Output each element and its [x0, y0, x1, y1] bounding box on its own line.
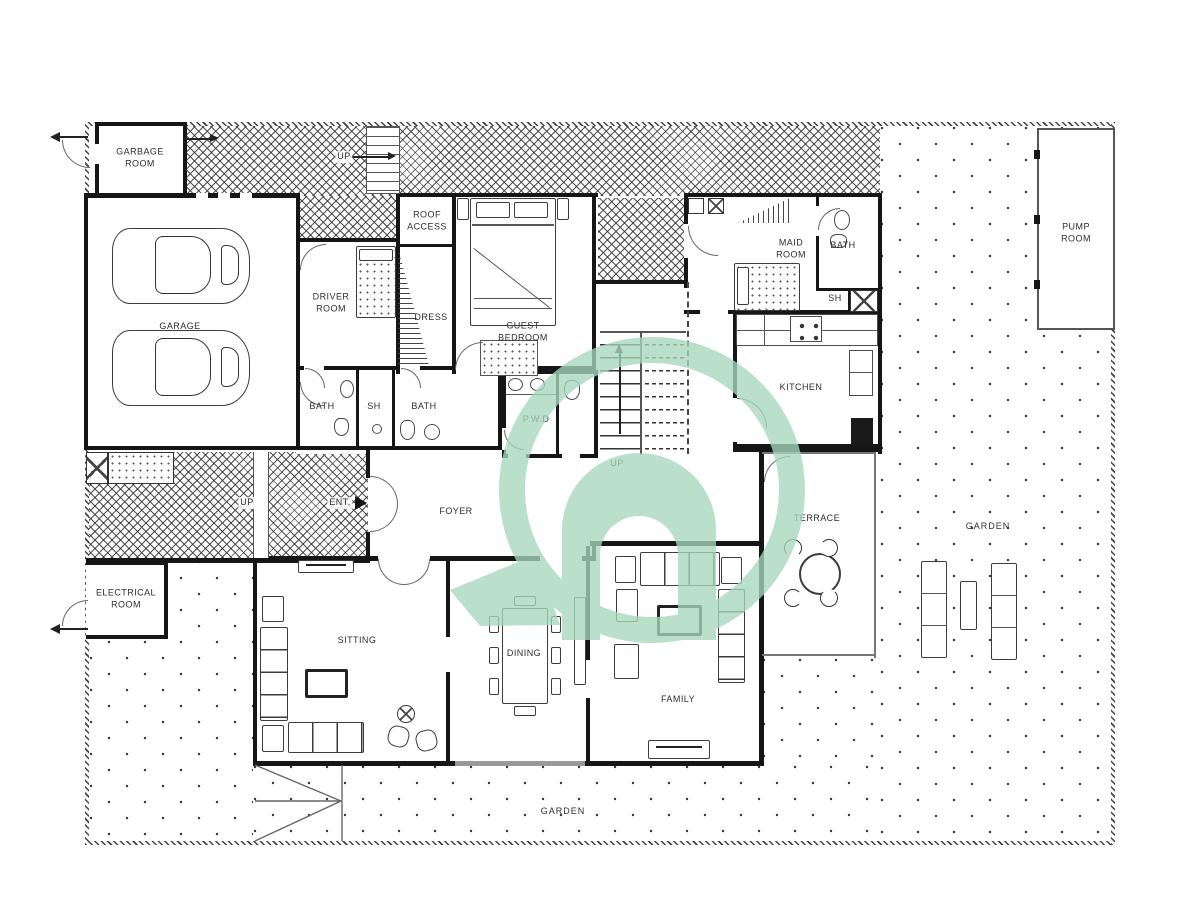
room-label-sitting: SITTING [338, 635, 377, 647]
sink-divider-line [849, 372, 873, 373]
room-label-family: FAMILY [661, 694, 695, 706]
entry-stair [366, 126, 400, 194]
car-hood-line [221, 347, 239, 387]
left-arrow-icon [50, 132, 60, 142]
refrigerator [851, 418, 873, 444]
label-ramp-up: UP [238, 497, 255, 509]
wall [396, 244, 454, 247]
walkway-top [178, 126, 880, 196]
garden-area-bottom [253, 765, 880, 841]
right-arrow-icon [388, 152, 396, 160]
wall [183, 122, 187, 196]
column [1034, 280, 1040, 289]
sofa [260, 627, 288, 721]
room-label-maid-bath: BATH [830, 240, 855, 252]
wall-gap [196, 193, 208, 198]
sink-icon [424, 424, 440, 440]
wall [164, 561, 168, 639]
garden-lounger [921, 561, 947, 658]
garden-side-table [960, 581, 977, 630]
wall [296, 193, 300, 450]
planter-box [108, 452, 174, 484]
entry-stair-arrow-line [350, 156, 390, 158]
boundary-wall-bottom [85, 841, 1115, 845]
wall [86, 561, 168, 565]
plant-icon [397, 705, 415, 723]
label-entrance: ENT. [327, 497, 352, 509]
car-hood-line [221, 245, 239, 285]
room-label-bath-1: BATH [309, 401, 334, 413]
room-label-maid-room: MAID ROOM [776, 237, 806, 260]
pillow [476, 202, 510, 218]
pillow [359, 249, 393, 261]
terrace-chair [820, 589, 838, 607]
wall [84, 446, 300, 450]
lounger-line [921, 593, 947, 594]
exit-arrow-line [60, 628, 88, 630]
drain-icon [372, 424, 382, 434]
sink-icon [340, 380, 354, 398]
garden-triangle-feature [253, 763, 347, 843]
car-cabin [155, 338, 211, 396]
wall [95, 164, 99, 196]
column-x-box [86, 452, 108, 484]
wall [366, 450, 370, 478]
watermark-logo [440, 330, 820, 660]
column [1034, 150, 1040, 159]
wall-gap [240, 193, 252, 198]
entrance-arrow-icon [355, 496, 367, 510]
room-label-maid-shower: SH [828, 293, 841, 305]
side-table [262, 725, 284, 752]
door-arc [62, 600, 88, 626]
terrace-wall [874, 452, 876, 658]
walkway-patch-notch [598, 198, 684, 282]
label-up-entry-stair: UP [335, 151, 352, 163]
wall [253, 556, 257, 766]
side-table [262, 596, 284, 622]
wall [596, 280, 686, 284]
room-label-dress: DRESS [414, 312, 447, 324]
room-label-garden-bottom: GARDEN [541, 806, 586, 818]
chair [514, 706, 536, 716]
wall [84, 193, 300, 198]
shaft-box [688, 198, 704, 214]
wall [455, 761, 585, 766]
tv-console [298, 560, 354, 573]
nightstand [557, 198, 569, 220]
door-gap [700, 310, 728, 314]
wall-gap [218, 193, 230, 198]
toilet-icon [400, 420, 415, 440]
bed-headboard-line [472, 224, 554, 226]
wall [878, 193, 882, 454]
room-label-electrical-room: ELECTRICAL ROOM [96, 587, 156, 610]
lounger-line [991, 627, 1017, 628]
exit-arrow-line [60, 136, 88, 138]
tv-console [648, 740, 710, 759]
wall [684, 193, 882, 197]
tv-line [656, 746, 702, 748]
coffee-table [305, 669, 348, 698]
pillow [514, 202, 548, 218]
sofa [288, 722, 364, 753]
column [1034, 215, 1040, 224]
floor-plan-canvas: GARBAGE ROOM GARAGE UP ROOF ACCESS DRIVE… [0, 0, 1200, 900]
door-arc [62, 140, 90, 168]
wall [356, 366, 359, 450]
room-label-driver-room: DRIVER ROOM [313, 291, 350, 314]
wall [446, 672, 450, 761]
room-label-bath-2: BATH [411, 401, 436, 413]
right-arrow-icon [210, 134, 219, 142]
wall [296, 238, 398, 242]
car [112, 228, 250, 304]
garden-area-below-terrace [762, 658, 880, 765]
room-label-pump-room: PUMP ROOM [1061, 221, 1091, 244]
room-label-garage: GARAGE [159, 321, 200, 333]
terrace-chair [820, 539, 838, 557]
lounger-line [991, 595, 1017, 596]
room-label-garbage-room: GARBAGE ROOM [116, 146, 164, 169]
wall [586, 698, 590, 761]
walkway-arrow-line [186, 138, 212, 140]
wall [86, 635, 168, 639]
car-cabin [155, 236, 211, 294]
walkway-patch-driver [298, 196, 396, 240]
wall [95, 122, 99, 144]
shower-x-box [850, 290, 878, 312]
lounger-line [921, 625, 947, 626]
chair [489, 678, 499, 695]
blanket-line [474, 308, 552, 309]
left-arrow-icon [50, 624, 60, 634]
room-label-roof-access: ROOF ACCESS [407, 209, 447, 232]
garden-lounger [991, 563, 1017, 660]
pillow [737, 267, 749, 305]
wall [396, 193, 598, 197]
tv-line [306, 564, 346, 566]
room-label-garden-right: GARDEN [966, 521, 1011, 533]
wall [84, 193, 88, 450]
shaft-x-box [708, 198, 724, 214]
nightstand [457, 198, 469, 220]
wall [392, 366, 395, 450]
kitchen-sink-icon [849, 350, 873, 396]
chair [551, 678, 561, 695]
car [112, 330, 250, 406]
wall [95, 122, 187, 126]
room-label-shower-1: SH [367, 401, 380, 413]
toilet-icon [334, 418, 349, 436]
